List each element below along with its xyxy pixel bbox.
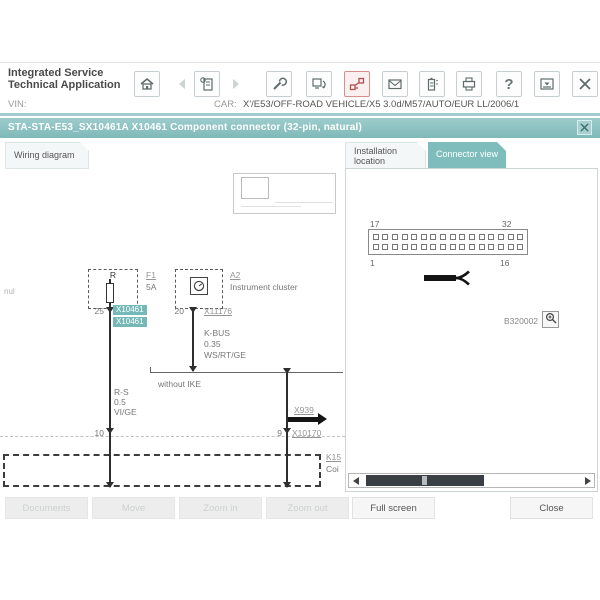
gauge-icon — [190, 277, 208, 295]
connector-pin — [517, 244, 523, 250]
connection-manager-icon — [311, 76, 327, 92]
tab-label: Wiring diagram — [6, 143, 88, 160]
printer-icon — [461, 76, 477, 92]
cluster-name: Instrument cluster — [230, 282, 298, 292]
image-reference: B320002 — [504, 316, 538, 326]
right-arrow-icon — [585, 477, 591, 485]
app-title: Integrated Service Technical Application — [8, 67, 120, 91]
cluster-connector-link[interactable]: X11176 — [204, 306, 232, 316]
connector-pin — [488, 244, 494, 250]
wire-arrow — [189, 366, 197, 372]
operations-list-button[interactable] — [194, 71, 220, 97]
connector-pin — [411, 234, 417, 240]
magnifier-icon — [545, 311, 557, 329]
fuse-rating: 5A — [146, 282, 156, 292]
connector-pin — [517, 234, 523, 240]
branch-note: without IKE — [158, 379, 201, 389]
tab-label: Installation location — [346, 143, 425, 166]
tab-connector-view[interactable]: Connector view — [428, 142, 506, 169]
scroll-left-button[interactable] — [349, 474, 362, 487]
magnify-button[interactable] — [542, 311, 559, 328]
pin-number: 25 — [84, 306, 104, 316]
connector-pin — [479, 234, 485, 240]
connector-pin — [440, 234, 446, 240]
battery-icon — [424, 76, 440, 92]
connector-pin — [411, 244, 417, 250]
connector-pin — [382, 234, 388, 240]
help-button[interactable]: ? — [496, 71, 522, 97]
wrench-icon — [271, 76, 287, 92]
connector-pin — [469, 234, 475, 240]
pin-number: 20 — [166, 306, 184, 316]
documents-button[interactable]: Documents — [5, 497, 88, 519]
pin-arrow — [189, 307, 197, 313]
car-label: CAR: — [214, 99, 237, 110]
pin-number: 10 — [80, 428, 104, 438]
connector-pin — [430, 244, 436, 250]
scrollbar-thumb[interactable] — [366, 475, 484, 486]
exit-button[interactable] — [572, 71, 598, 97]
bottom-component-box — [3, 454, 321, 487]
connector-pin — [440, 244, 446, 250]
connector-pin-row-top — [369, 234, 527, 240]
pin-arrow — [283, 428, 291, 434]
move-button[interactable]: Move — [92, 497, 175, 519]
connector-tag-selected[interactable]: X10461 — [113, 317, 147, 327]
x10170-link[interactable]: X10170 — [292, 428, 321, 438]
document-title: STA-STA-E53_SX10461A X10461 Component co… — [8, 122, 362, 133]
zoom-out-button[interactable]: Zoom out — [266, 497, 349, 519]
help-icon: ? — [504, 76, 513, 93]
main-toolbar: Integrated Service Technical Application — [0, 62, 600, 98]
wire-left — [109, 309, 111, 487]
print-button[interactable] — [456, 71, 482, 97]
envelope-icon — [387, 76, 403, 92]
car-value: X'/E53/OFF-ROAD VEHICLE/X5 3.0d/M57/AUTO… — [243, 99, 519, 110]
scroll-right-button[interactable] — [581, 474, 594, 487]
app-title-line1: Integrated Service — [8, 67, 120, 79]
left-arrow-icon — [353, 477, 359, 485]
connector-view-panel: 17 32 1 16 B320002 — [345, 168, 598, 492]
connector-pin — [488, 234, 494, 240]
pin-label-32: 32 — [502, 219, 511, 229]
close-icon — [580, 119, 589, 137]
connector-pin — [373, 244, 379, 250]
pin-arrow — [106, 428, 114, 434]
close-button[interactable]: Close — [510, 497, 593, 519]
operations-list-icon — [199, 76, 215, 92]
wiring-diagram-panel: nul R F1 5A 25 X10461 X10461 R-S 0.5 VI/… — [0, 169, 345, 493]
ista-window: Integrated Service Technical Application — [0, 0, 600, 600]
pin-label-17: 17 — [370, 219, 379, 229]
forward-icon — [230, 77, 242, 91]
tab-installation-location[interactable]: Installation location — [345, 142, 426, 169]
exit-arrow-head — [318, 413, 327, 425]
title-block-line — [275, 202, 333, 203]
connector-pin — [421, 244, 427, 250]
minimize-button[interactable] — [534, 71, 560, 97]
connector-pin — [479, 244, 485, 250]
connector-pin-row-bottom — [369, 244, 527, 250]
fuse-ref-link[interactable]: F1 — [146, 270, 156, 280]
connector-pin — [469, 244, 475, 250]
connector-pin — [373, 234, 379, 240]
connector-pin — [450, 234, 456, 240]
zoom-in-button[interactable]: Zoom in — [179, 497, 262, 519]
pin-label-1: 1 — [370, 258, 375, 268]
wire-kbus-label: K-BUS 0.35 WS/RT/GE — [204, 328, 246, 361]
connector-pin — [498, 234, 504, 240]
wire-end-arrow — [283, 482, 291, 488]
connector-pin — [459, 244, 465, 250]
bottom-box-ref[interactable]: K15 — [326, 452, 341, 462]
home-icon — [139, 76, 155, 92]
tab-wiring-diagram[interactable]: Wiring diagram — [5, 142, 89, 169]
scrollbar-grip — [422, 476, 427, 485]
connector-drawing — [368, 229, 528, 255]
junction-line — [150, 372, 343, 373]
pin-label-16: 16 — [500, 258, 509, 268]
close-icon — [578, 77, 592, 91]
plug-direction-symbol — [424, 269, 474, 292]
connector-pin — [430, 234, 436, 240]
connector-pin — [392, 244, 398, 250]
fuse-symbol — [106, 283, 114, 303]
app-title-line2: Technical Application — [8, 79, 120, 91]
forward-button[interactable] — [228, 71, 244, 97]
exit-arrow-bar — [288, 417, 318, 422]
wire-kbus — [192, 309, 194, 371]
home-button[interactable] — [134, 71, 160, 97]
back-icon — [176, 77, 188, 91]
vehicle-interface-button[interactable] — [344, 71, 370, 97]
fuse-designator: R — [88, 270, 138, 280]
connector-pin — [508, 244, 514, 250]
title-block-line — [241, 206, 301, 207]
back-button[interactable] — [174, 71, 190, 97]
junction-arrow — [283, 368, 291, 374]
battery-button[interactable] — [419, 71, 445, 97]
connection-manager-button[interactable] — [306, 71, 332, 97]
connector-pin — [450, 244, 456, 250]
vehicle-info-bar: VIN: CAR: X'/E53/OFF-ROAD VEHICLE/X5 3.0… — [0, 97, 600, 113]
bottom-box-name: Coi — [326, 464, 339, 474]
cluster-ref-link[interactable]: A2 — [230, 270, 240, 280]
connector-pin — [392, 234, 398, 240]
vin-label: VIN: — [8, 99, 26, 110]
connector-pin — [459, 234, 465, 240]
document-close-button[interactable] — [577, 120, 592, 135]
messages-button[interactable] — [382, 71, 408, 97]
title-block-logo — [241, 177, 269, 199]
wire-end-arrow — [106, 482, 114, 488]
margin-note: nul — [4, 287, 15, 296]
vehicle-interface-icon — [349, 76, 365, 92]
teal-divider — [0, 113, 600, 116]
full-screen-button[interactable]: Full screen — [352, 497, 435, 519]
tab-label: Connector view — [428, 142, 506, 159]
connector-pin — [402, 244, 408, 250]
connector-tag-selected[interactable]: X10461 — [113, 305, 147, 315]
connector-pin — [508, 234, 514, 240]
workshop-button[interactable] — [266, 71, 292, 97]
x939-link[interactable]: X939 — [294, 405, 314, 415]
document-title-bar: STA-STA-E53_SX10461A X10461 Component co… — [0, 118, 600, 138]
connector-pin — [498, 244, 504, 250]
wire-left-label: R-S 0.5 VI/GE — [114, 387, 137, 417]
connector-pin — [402, 234, 408, 240]
horizontal-scrollbar[interactable] — [348, 473, 595, 488]
pin-number: 9 — [260, 428, 282, 438]
connector-pin — [382, 244, 388, 250]
connector-pin — [421, 234, 427, 240]
minimize-icon — [539, 76, 555, 92]
